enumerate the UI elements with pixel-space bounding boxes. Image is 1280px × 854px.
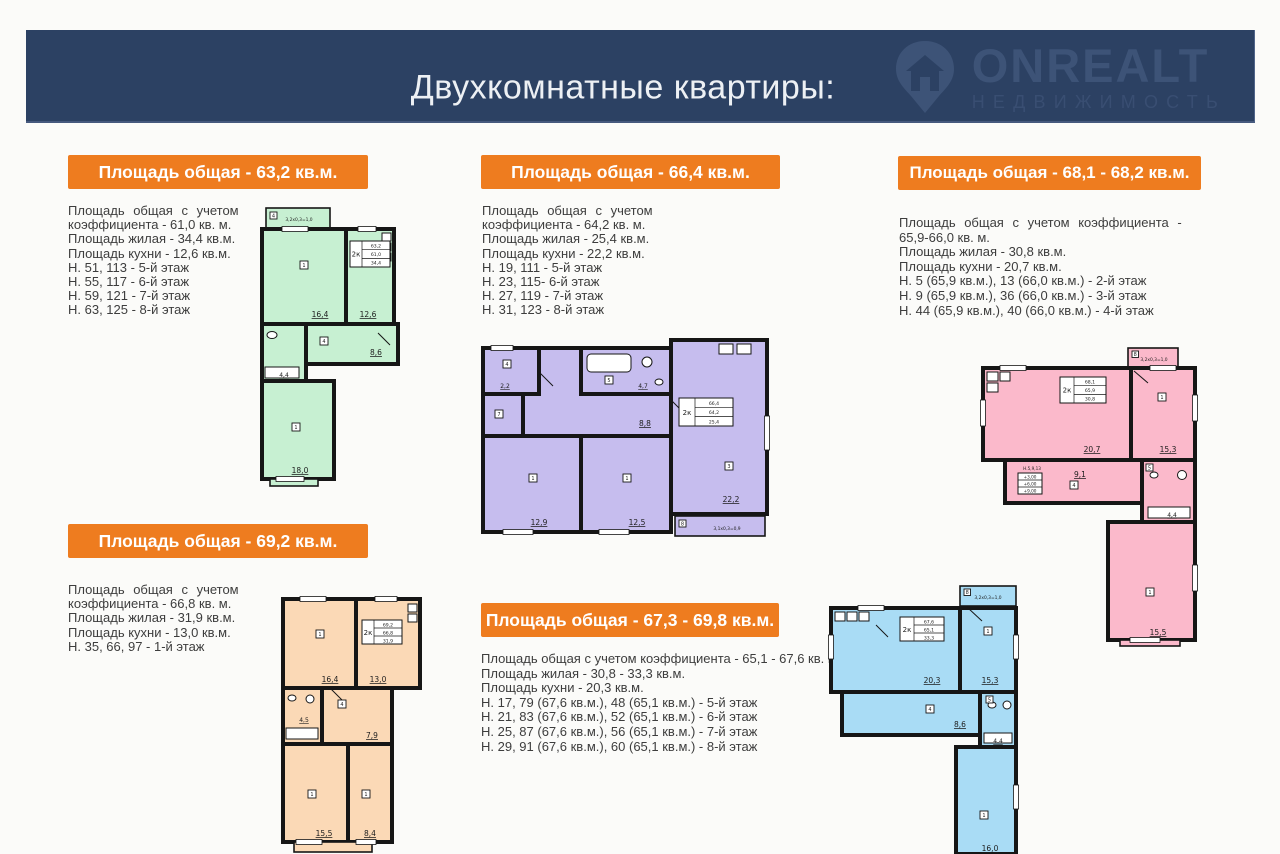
details-line: Площадь общая с учетом	[482, 204, 682, 218]
tag-room1: 1	[986, 629, 989, 635]
details-line: Н. 29, 91 (67,6 кв.м.), 60 (65,1 кв.м.) …	[481, 740, 833, 755]
stamp-living-area: 31,9	[383, 639, 393, 645]
room1-area-label: 12,9	[531, 518, 548, 527]
tag-hall: 4	[928, 707, 931, 713]
header-banner: Двухкомнатные квартиры: ONREALT НЕДВИЖИМ…	[26, 30, 1255, 123]
hall-area-label: 8,8	[639, 419, 651, 428]
tag-storage: 7	[497, 412, 500, 418]
floorplan-purple-stamp: 2к 66,4 64,2 25,4	[679, 398, 733, 426]
tag-balcony: 8	[966, 590, 969, 596]
logo-text: ONREALT НЕДВИЖИМОСТЬ	[972, 42, 1226, 113]
room2-area-label: 16,0	[982, 844, 999, 853]
room2-area-label: 15,5	[316, 829, 333, 838]
apartment-details-1: Площадь общая с учетом коэффициента - 61…	[68, 204, 264, 318]
floorplan-green-stamp: 2к 63,2 61,0 34,4	[350, 241, 390, 267]
room1-area-label: 16,4	[322, 675, 339, 684]
stamp-living-area: 25,4	[709, 420, 719, 426]
room2-area-label: 15,5	[1150, 628, 1167, 637]
details-line: Н. 31, 123 - 8-й этаж	[482, 303, 682, 317]
bath-area-label: 4,4	[993, 738, 1003, 745]
elevation-mark: +3,00	[1024, 475, 1037, 480]
stamp-reduced-area: 64,2	[709, 410, 719, 416]
room1-area-label: 15,3	[982, 676, 999, 685]
tag-room1: 1	[318, 632, 321, 638]
tag-balcony: 8	[681, 522, 684, 528]
details-line: Н. 55, 117 - 6-й этаж	[68, 275, 264, 289]
floorplan-blue: 2к 67,6 65,1 33,3 8 1 4 5 1 3,2х0,3=1,0 …	[828, 585, 1020, 854]
stamp-total-area: 68,1	[1085, 380, 1095, 386]
details-line: Площадь жилая - 30,8 - 33,3 кв.м.	[481, 667, 833, 682]
tag-living: 3	[727, 464, 730, 470]
hall-area-label: 8,6	[370, 348, 382, 357]
details-line: Площадь кухни - 13,0 кв.м.	[68, 626, 264, 640]
details-line: Н. 23, 115- 6-й этаж	[482, 275, 682, 289]
stamp-reduced-area: 66,8	[383, 631, 393, 637]
tag-room3: 1	[364, 792, 367, 798]
living-area-label: 22,2	[723, 495, 740, 504]
details-line: Н. 27, 119 - 7-й этаж	[482, 289, 682, 303]
apartment-details-2: Площадь общая с учетом коэффициента - 64…	[482, 204, 682, 318]
details-line: Площадь общая с учетом	[68, 583, 264, 597]
bath-area-label: 4,7	[638, 383, 648, 390]
stamp-type: 2к	[352, 251, 361, 259]
area-badge-69-2: Площадь общая - 69,2 кв.м.	[68, 524, 368, 558]
tag-hall: 4	[1072, 483, 1075, 489]
tag-balcony: 8	[1134, 352, 1137, 358]
apartment-details-5: Площадь общая с учетом коэффициента - 65…	[481, 652, 833, 754]
kitchen-area-label: 20,7	[1084, 445, 1101, 454]
elevation-mark: +9,00	[1024, 489, 1037, 494]
tag-room1: 1	[531, 476, 534, 482]
bath-area-label: 4,4	[279, 372, 289, 379]
tag-bath: 5	[1148, 466, 1151, 472]
hall-area-label: 9,1	[1074, 470, 1086, 479]
stamp-living-area: 33,3	[924, 636, 934, 642]
flyer-page: Двухкомнатные квартиры: ONREALT НЕДВИЖИМ…	[0, 0, 1280, 854]
kitchen-area-label: 13,0	[370, 675, 387, 684]
stamp-reduced-area: 61,0	[371, 252, 381, 258]
details-line: Н. 63, 125 - 8-й этаж	[68, 303, 264, 317]
entry-area-label: 2,2	[500, 383, 510, 390]
balcony-size-label: 3,2х0,3=1,0	[1140, 357, 1167, 363]
details-line: Н. 25, 87 (67,6 кв.м.), 56 (65,1 кв.м.) …	[481, 725, 833, 740]
details-line: коэффициента - 61,0 кв. м.	[68, 218, 264, 232]
tag-hall: 4	[322, 339, 325, 345]
stamp-living-area: 34,4	[371, 261, 381, 267]
tag-room2: 1	[625, 476, 628, 482]
hall-area-label: 7,9	[366, 731, 378, 740]
area-badge-68-1: Площадь общая - 68,1 - 68,2 кв.м.	[898, 156, 1201, 190]
tag-bath: 5	[988, 698, 991, 704]
room2-area-label: 12,5	[629, 518, 646, 527]
tag-room2: 1	[310, 792, 313, 798]
tag-bath: 5	[607, 378, 610, 384]
stamp-total-area: 67,6	[924, 620, 934, 626]
details-line: Площадь общая с учетом коэффициента -	[899, 216, 1229, 231]
details-line: Н. 51, 113 - 5-й этаж	[68, 261, 264, 275]
stamp-living-area: 30,8	[1085, 397, 1095, 403]
stamp-type: 2к	[1063, 387, 1072, 395]
tag-room2: 1	[294, 425, 297, 431]
floorplan-purple: 2к 66,4 64,2 25,4 4 7 5 1 1 3 8 2,2 4,7 …	[479, 336, 771, 544]
floorplan-blue-stamp: 2к 67,6 65,1 33,3	[900, 617, 944, 642]
balcony-size-label: 3,2х0,3=1,0	[285, 217, 312, 223]
elevation-mark: +6,00	[1024, 482, 1037, 487]
details-line: Н. 35, 66, 97 - 1-й этаж	[68, 640, 264, 654]
details-line: Н. 59, 121 - 7-й этаж	[68, 289, 264, 303]
tag-room1: 1	[1160, 395, 1163, 401]
kitchen-area-label: 20,3	[924, 676, 941, 685]
balcony-size-label: 3,2х0,3=1,0	[974, 595, 1001, 601]
details-line: Н. 17, 79 (67,6 кв.м.), 48 (65,1 кв.м.) …	[481, 696, 833, 711]
onrealt-logo: ONREALT НЕДВИЖИМОСТЬ	[892, 39, 1226, 115]
room3-area-label: 8,4	[364, 829, 376, 838]
details-line: Н. 9 (65,9 кв.м.), 36 (66,0 кв.м.) - 3-й…	[899, 289, 1229, 304]
logo-pin-house-icon	[892, 39, 958, 115]
tag-room2: 1	[1148, 590, 1151, 596]
details-line: 65,9-66,0 кв. м.	[899, 231, 1229, 246]
stamp-reduced-area: 65,1	[924, 628, 934, 634]
area-badge-66-4: Площадь общая - 66,4 кв.м.	[481, 155, 780, 189]
details-line: Н. 44 (65,9 кв.м.), 40 (66,0 кв.м.) - 4-…	[899, 304, 1229, 319]
kitchen-area-label: 12,6	[360, 310, 377, 319]
area-badge-67-3: Площадь общая - 67,3 - 69,8 кв.м.	[481, 603, 779, 637]
tag-balcony: 4	[272, 214, 275, 220]
floorplan-pink-stamp: 2к 68,1 65,9 30,8	[1060, 377, 1106, 403]
details-line: Площадь кухни - 12,6 кв.м.	[68, 247, 264, 261]
details-line: Н. 21, 83 (67,6 кв.м.), 52 (65,1 кв.м.) …	[481, 710, 833, 725]
stamp-reduced-area: 65,9	[1085, 388, 1095, 394]
details-line: Площадь кухни - 20,7 кв.м.	[899, 260, 1229, 275]
room1-area-label: 15,3	[1160, 445, 1177, 454]
details-line: Площадь общая с учетом коэффициента - 65…	[481, 652, 833, 667]
tag-entry: 4	[505, 362, 508, 368]
bath-area-label: 4,5	[299, 717, 309, 724]
details-line: Площадь жилая - 31,9 кв.м.	[68, 611, 264, 625]
stamp-total-area: 69,2	[383, 623, 393, 629]
details-line: коэффициента - 64,2 кв. м.	[482, 218, 682, 232]
logo-name: ONREALT	[972, 42, 1226, 89]
tag-room2: 1	[982, 813, 985, 819]
floorplan-peach-stamp: 2к 69,2 66,8 31,9	[362, 620, 402, 645]
details-line: Площадь жилая - 25,4 кв.м.	[482, 232, 682, 246]
details-line: Площадь кухни - 20,3 кв.м.	[481, 681, 833, 696]
apartment-numbers-note: Н.5,9,13	[1023, 466, 1041, 471]
details-line: Площадь общая с учетом	[68, 204, 264, 218]
details-line: Площадь кухни - 22,2 кв.м.	[482, 247, 682, 261]
area-badge-63-2: Площадь общая - 63,2 кв.м.	[68, 155, 368, 189]
details-line: Площадь жилая - 30,8 кв.м.	[899, 245, 1229, 260]
apartment-details-3: Площадь общая с учетом коэффициента - 65…	[899, 216, 1229, 318]
apartment-details-4: Площадь общая с учетом коэффициента - 66…	[68, 583, 264, 654]
details-line: Н. 5 (65,9 кв.м.), 13 (66,0 кв.м.) - 2-й…	[899, 274, 1229, 289]
logo-subtitle: НЕДВИЖИМОСТЬ	[972, 92, 1226, 113]
hall-area-label: 8,6	[954, 720, 966, 729]
room2-area-label: 18,0	[292, 466, 309, 475]
stamp-type: 2к	[903, 626, 912, 634]
floorplan-green: 2к 63,2 61,0 34,4 4 1 4 1 3,2х0,3=1,0 16…	[258, 205, 404, 487]
bath-area-label: 4,4	[1167, 512, 1177, 519]
stamp-type: 2к	[683, 409, 692, 417]
details-line: Площадь жилая - 34,4 кв.м.	[68, 232, 264, 246]
stamp-total-area: 63,2	[371, 244, 381, 250]
details-line: коэффициента - 66,8 кв. м.	[68, 597, 264, 611]
floorplan-peach: 2к 69,2 66,8 31,9 1 4 1 1 16,4 13,0 4,5 …	[280, 596, 432, 854]
room1-area-label: 16,4	[312, 310, 329, 319]
tag-room1: 1	[302, 263, 305, 269]
stamp-type: 2к	[364, 629, 373, 637]
details-line: Н. 19, 111 - 5-й этаж	[482, 261, 682, 275]
stamp-total-area: 66,4	[709, 401, 719, 407]
balcony-size-label: 3,1х0,3=0,9	[713, 526, 740, 532]
tag-hall: 4	[340, 702, 343, 708]
